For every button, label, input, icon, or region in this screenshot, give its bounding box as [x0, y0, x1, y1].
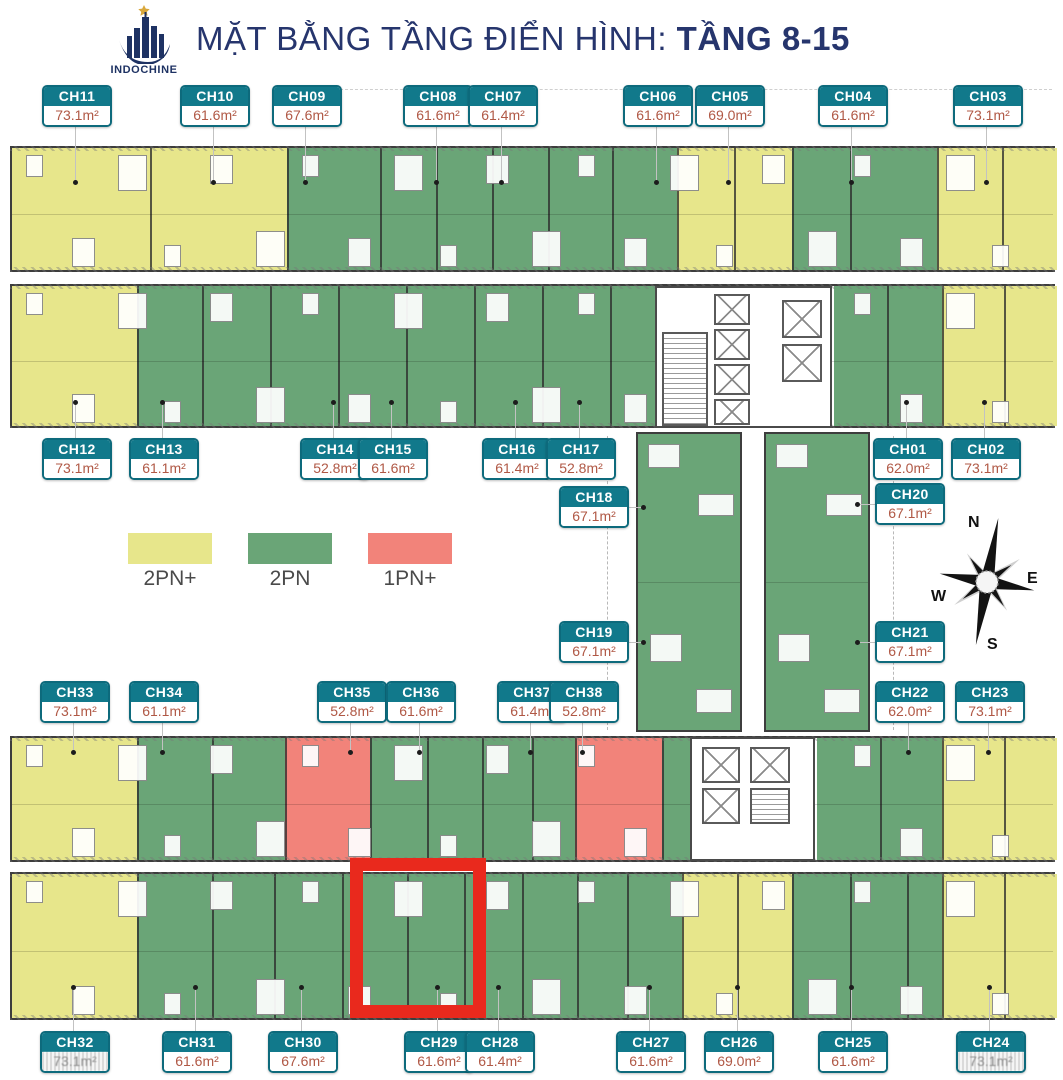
building-strip-2	[10, 284, 1055, 428]
furniture	[992, 993, 1009, 1015]
furniture	[118, 293, 147, 329]
furniture	[302, 881, 319, 903]
leader-dot	[654, 180, 659, 185]
leader-line	[195, 987, 196, 1031]
unit-code: CH16	[484, 440, 550, 459]
unit-label-ch12: CH1273.1m²	[42, 438, 112, 480]
unit-code: CH29	[406, 1033, 472, 1052]
furniture	[992, 401, 1009, 423]
leader-dot	[855, 640, 860, 645]
unit-block	[287, 148, 677, 270]
building-strip-1	[10, 146, 1055, 272]
furniture	[72, 986, 95, 1015]
furniture	[440, 835, 457, 857]
furniture	[440, 245, 457, 267]
leader-dot	[986, 750, 991, 755]
unit-area: 67.1m²	[561, 507, 627, 526]
unit-area: 61.1m²	[131, 459, 197, 478]
unit-code: CH05	[697, 87, 763, 106]
unit-code: CH27	[618, 1033, 684, 1052]
furniture	[210, 881, 233, 910]
unit-code: CH25	[820, 1033, 886, 1052]
furniture	[900, 394, 923, 423]
furniture	[762, 881, 785, 910]
unit-label-ch35: CH3552.8m²	[317, 681, 387, 723]
elevator-shaft	[714, 329, 750, 360]
leader-line	[75, 402, 76, 438]
leader-dot	[641, 640, 646, 645]
unit-code: CH30	[270, 1033, 336, 1052]
furniture	[210, 293, 233, 322]
furniture	[302, 293, 319, 315]
unit-code: CH24	[958, 1033, 1024, 1052]
leader-dot	[496, 985, 501, 990]
interior-wall	[474, 286, 476, 426]
unit-code: CH21	[877, 623, 943, 642]
unit-label-ch36: CH3661.6m²	[386, 681, 456, 723]
unit-label-ch24: CH2473.1m²	[956, 1031, 1026, 1073]
unit-code: CH13	[131, 440, 197, 459]
leader-dot	[331, 400, 336, 405]
unit-label-ch31: CH3161.6m²	[162, 1031, 232, 1073]
furniture	[624, 986, 647, 1015]
furniture	[648, 444, 680, 468]
unit-area: 67.1m²	[561, 642, 627, 661]
building-strip-3	[10, 736, 1055, 862]
interior-wall	[792, 148, 794, 270]
leader-line	[851, 987, 852, 1031]
furniture	[348, 394, 371, 423]
elevator-shaft	[750, 747, 790, 783]
unit-label-ch18: CH1867.1m²	[559, 486, 629, 528]
unit-area: 61.6m²	[820, 1052, 886, 1071]
interior-wall	[285, 738, 287, 860]
leader-line	[419, 723, 420, 752]
furniture	[624, 238, 647, 267]
interior-wall	[12, 804, 1053, 805]
leader-dot	[647, 985, 652, 990]
leader-dot	[528, 750, 533, 755]
unit-area: 61.4m²	[467, 1052, 533, 1071]
furniture	[578, 293, 595, 315]
leader-dot	[303, 180, 308, 185]
leader-line	[986, 127, 987, 182]
unit-label-ch16: CH1661.4m²	[482, 438, 552, 480]
leader-dot	[987, 985, 992, 990]
legend-swatch-2pn+	[128, 533, 212, 564]
unit-code: CH31	[164, 1033, 230, 1052]
unit-area: 61.6m²	[406, 1052, 472, 1071]
balcony-hatch	[10, 423, 1055, 428]
furniture	[992, 835, 1009, 857]
leader-dot	[160, 400, 165, 405]
furniture	[532, 387, 561, 423]
furniture	[778, 634, 810, 662]
unit-area: 61.4m²	[484, 459, 550, 478]
leader-dot	[904, 400, 909, 405]
building-wing-column-1	[636, 432, 742, 732]
unit-code: CH12	[44, 440, 110, 459]
furniture	[696, 689, 732, 713]
unit-area: 73.1m²	[953, 459, 1019, 478]
interior-wall	[342, 874, 344, 1018]
elevator-shaft	[714, 364, 750, 395]
leader-line	[649, 987, 650, 1031]
unit-code: CH10	[182, 87, 248, 106]
leader-dot	[193, 985, 198, 990]
unit-code: CH28	[467, 1033, 533, 1052]
leader-line	[162, 402, 163, 438]
legend-label: 2PN	[248, 567, 332, 591]
unit-area: 61.6m²	[164, 1052, 230, 1071]
furniture	[762, 155, 785, 184]
unit-label-ch21: CH2167.1m²	[875, 621, 945, 663]
unit-label-ch04: CH0461.6m²	[818, 85, 888, 127]
interior-wall	[522, 874, 524, 1018]
compass-north-label: N	[968, 514, 980, 532]
leader-dot	[160, 750, 165, 755]
furniture	[256, 821, 285, 857]
furniture	[578, 745, 595, 767]
leader-dot	[73, 180, 78, 185]
furniture	[670, 881, 699, 917]
unit-label-ch28: CH2861.4m²	[465, 1031, 535, 1073]
elevator-core-1	[655, 286, 832, 428]
leader-dot	[299, 985, 304, 990]
furniture	[26, 155, 43, 177]
leader-line	[213, 127, 214, 182]
unit-area: 69.0m²	[697, 106, 763, 125]
unit-area: 52.8m²	[548, 459, 614, 478]
leader-line	[350, 723, 351, 752]
interior-wall	[942, 874, 944, 1018]
unit-code: CH18	[561, 488, 627, 507]
furniture	[118, 745, 147, 781]
compass-west-label: W	[931, 588, 946, 606]
leader-line	[656, 127, 657, 182]
furniture	[716, 993, 733, 1015]
interior-wall	[427, 738, 429, 860]
interior-wall	[610, 286, 612, 426]
leader-line	[498, 987, 499, 1031]
furniture	[578, 155, 595, 177]
unit-area: 61.4m²	[470, 106, 536, 125]
unit-code: CH08	[405, 87, 471, 106]
unit-area: 52.8m²	[551, 702, 617, 721]
leader-line	[75, 127, 76, 182]
furniture	[164, 245, 181, 267]
elevator-shaft	[702, 788, 740, 824]
furniture	[946, 881, 975, 917]
furniture	[394, 293, 423, 329]
furniture	[532, 979, 561, 1015]
unit-code: CH15	[360, 440, 426, 459]
unit-label-ch38: CH3852.8m²	[549, 681, 619, 723]
unit-area: 61.6m²	[820, 106, 886, 125]
furniture	[118, 881, 147, 917]
legend-swatch-2pn	[248, 533, 332, 564]
furniture	[210, 745, 233, 774]
unit-label-ch19: CH1967.1m²	[559, 621, 629, 663]
unit-code: CH32	[42, 1033, 108, 1052]
leader-line	[908, 723, 909, 752]
unit-code: CH06	[625, 87, 691, 106]
unit-area: 52.8m²	[319, 702, 385, 721]
unit-label-ch13: CH1361.1m²	[129, 438, 199, 480]
unit-label-ch26: CH2669.0m²	[704, 1031, 774, 1073]
leader-line	[582, 723, 583, 752]
furniture	[900, 238, 923, 267]
furniture	[900, 986, 923, 1015]
page-title-floors: TẦNG 8-15	[677, 20, 850, 57]
interior-wall	[575, 738, 577, 860]
unit-label-ch09: CH0967.6m²	[272, 85, 342, 127]
unit-label-ch22: CH2262.0m²	[875, 681, 945, 723]
elevator-shaft	[782, 300, 822, 338]
furniture	[256, 979, 285, 1015]
leader-line	[436, 127, 437, 182]
unit-code: CH03	[955, 87, 1021, 106]
furniture	[624, 828, 647, 857]
furniture	[348, 238, 371, 267]
unit-code: CH26	[706, 1033, 772, 1052]
interior-wall	[12, 951, 1053, 952]
leader-dot	[577, 400, 582, 405]
unit-code: CH35	[319, 683, 385, 702]
unit-code: CH23	[957, 683, 1023, 702]
unit-label-ch06: CH0661.6m²	[623, 85, 693, 127]
leader-dot	[513, 400, 518, 405]
unit-label-ch01: CH0162.0m²	[873, 438, 943, 480]
interior-wall	[638, 582, 740, 583]
furniture	[824, 689, 860, 713]
furniture	[164, 993, 181, 1015]
elevator-shaft	[714, 294, 750, 325]
leader-line	[305, 127, 306, 182]
leader-dot	[499, 180, 504, 185]
furniture	[854, 155, 871, 177]
unit-code: CH17	[548, 440, 614, 459]
balcony-hatch	[10, 146, 1055, 151]
unit-area: 69.0m²	[706, 1052, 772, 1071]
leader-dot	[73, 400, 78, 405]
unit-code: CH01	[875, 440, 941, 459]
furniture	[992, 245, 1009, 267]
unit-label-ch25: CH2561.6m²	[818, 1031, 888, 1073]
interior-wall	[338, 286, 340, 426]
unit-code: CH11	[44, 87, 110, 106]
leader-line	[515, 402, 516, 438]
interior-wall	[12, 214, 1053, 215]
unit-area: 73.1m²	[955, 106, 1021, 125]
leader-line	[391, 402, 392, 438]
unit-code: CH38	[551, 683, 617, 702]
unit-area: 67.1m²	[877, 504, 943, 523]
interior-wall	[792, 874, 794, 1018]
leader-dot	[849, 180, 854, 185]
furniture	[854, 745, 871, 767]
floor-plan-page: INDOCHINE MẶT BẰNG TẦNG ĐIỂN HÌNH: TẦNG …	[0, 0, 1063, 1080]
leader-dot	[348, 750, 353, 755]
furniture	[854, 881, 871, 903]
leader-dot	[71, 985, 76, 990]
unit-label-ch17: CH1752.8m²	[546, 438, 616, 480]
unit-code: CH20	[877, 485, 943, 504]
leader-dot	[580, 750, 585, 755]
leader-line	[530, 723, 531, 752]
balcony-hatch	[10, 857, 1055, 862]
unit-label-ch08: CH0861.6m²	[403, 85, 473, 127]
unit-label-ch27: CH2761.6m²	[616, 1031, 686, 1073]
unit-block	[662, 738, 692, 860]
leader-dot	[389, 400, 394, 405]
interior-wall	[150, 148, 152, 270]
unit-area: 61.6m²	[388, 702, 454, 721]
furniture	[532, 821, 561, 857]
unit-code: CH33	[42, 683, 108, 702]
legend-label: 2PN+	[128, 567, 212, 591]
furniture	[118, 155, 147, 191]
balcony-hatch	[10, 284, 1055, 289]
legend-label: 1PN+	[368, 567, 452, 591]
leader-line	[989, 987, 990, 1031]
balcony-hatch	[10, 1015, 1055, 1020]
furniture	[72, 238, 95, 267]
interior-wall	[662, 738, 664, 860]
page-title: MẶT BẰNG TẦNG ĐIỂN HÌNH: TẦNG 8-15	[196, 20, 850, 58]
unit-code: CH02	[953, 440, 1019, 459]
leader-line	[851, 127, 852, 182]
furniture	[256, 387, 285, 423]
unit-label-ch05: CH0569.0m²	[695, 85, 765, 127]
furniture	[302, 745, 319, 767]
furniture	[808, 979, 837, 1015]
leader-line	[737, 987, 738, 1031]
unit-code: CH34	[131, 683, 197, 702]
page-title-prefix: MẶT BẰNG TẦNG ĐIỂN HÌNH:	[196, 20, 677, 57]
leader-line	[162, 723, 163, 752]
interior-wall	[287, 148, 289, 270]
leader-line	[579, 402, 580, 438]
unit-label-ch03: CH0373.1m²	[953, 85, 1023, 127]
unit-label-ch20: CH2067.1m²	[875, 483, 945, 525]
leader-line	[73, 987, 74, 1031]
unit-code: CH09	[274, 87, 340, 106]
balcony-hatch	[10, 872, 1055, 877]
furniture	[532, 231, 561, 267]
leader-line	[333, 402, 334, 438]
leader-dot	[641, 505, 646, 510]
furniture	[26, 745, 43, 767]
unit-area: 73.1m²	[42, 1052, 108, 1071]
unit-area: 61.6m²	[625, 106, 691, 125]
furniture	[946, 155, 975, 191]
furniture	[256, 231, 285, 267]
unit-area: 67.6m²	[274, 106, 340, 125]
unit-code: CH19	[561, 623, 627, 642]
furniture	[486, 155, 509, 184]
leader-dot	[906, 750, 911, 755]
leader-dot	[982, 400, 987, 405]
unit-area: 61.6m²	[360, 459, 426, 478]
interior-wall	[887, 286, 889, 426]
furniture	[486, 745, 509, 774]
unit-label-ch29: CH2961.6m²	[404, 1031, 474, 1073]
furniture	[578, 881, 595, 903]
unit-area: 73.1m²	[957, 702, 1023, 721]
leader-line	[988, 723, 989, 752]
unit-area: 61.6m²	[618, 1052, 684, 1071]
unit-area: 73.1m²	[44, 459, 110, 478]
furniture	[394, 155, 423, 191]
balcony-hatch	[10, 267, 1055, 272]
interior-wall	[202, 286, 204, 426]
interior-wall	[880, 738, 882, 860]
legend-swatch-1pn+	[368, 533, 452, 564]
unit-code: CH22	[877, 683, 943, 702]
furniture	[698, 494, 734, 516]
interior-wall	[482, 738, 484, 860]
interior-wall	[942, 286, 944, 426]
leader-line	[301, 987, 302, 1031]
indochine-brand-text: INDOCHINE	[94, 64, 194, 76]
leader-dot	[726, 180, 731, 185]
unit-area: 62.0m²	[877, 702, 943, 721]
unit-area: 73.1m²	[958, 1052, 1024, 1071]
interior-wall	[612, 148, 614, 270]
elevator-shaft	[714, 399, 750, 425]
furniture	[900, 828, 923, 857]
furniture	[776, 444, 808, 468]
leader-dot	[984, 180, 989, 185]
unit-area: 67.1m²	[877, 642, 943, 661]
interior-wall	[734, 148, 736, 270]
leader-line	[728, 127, 729, 182]
leader-dot	[71, 750, 76, 755]
elevator-shaft	[702, 747, 740, 783]
leader-line	[906, 402, 907, 438]
building-wing-column-2	[764, 432, 870, 732]
unit-area: 73.1m²	[44, 106, 110, 125]
interior-wall	[937, 148, 939, 270]
furniture	[946, 745, 975, 781]
furniture	[72, 828, 95, 857]
unit-code: CH07	[470, 87, 536, 106]
unit-label-ch02: CH0273.1m²	[951, 438, 1021, 480]
leader-dot	[849, 985, 854, 990]
unit-area: 62.0m²	[875, 459, 941, 478]
furniture	[946, 293, 975, 329]
leader-dot	[211, 180, 216, 185]
unit-area: 67.6m²	[270, 1052, 336, 1071]
furniture	[440, 401, 457, 423]
leader-line	[984, 402, 985, 438]
furniture	[486, 293, 509, 322]
furniture	[854, 293, 871, 315]
compass-east-label: E	[1027, 570, 1038, 588]
unit-code: CH04	[820, 87, 886, 106]
furniture	[164, 835, 181, 857]
unit-code: CH36	[388, 683, 454, 702]
furniture	[716, 245, 733, 267]
elevator-core-2	[690, 737, 815, 861]
unit-label-ch11: CH1173.1m²	[42, 85, 112, 127]
unit-label-ch30: CH3067.6m²	[268, 1031, 338, 1073]
elevator-shaft	[782, 344, 822, 382]
compass-south-label: S	[987, 636, 998, 654]
leader-dot	[855, 502, 860, 507]
furniture	[348, 828, 371, 857]
